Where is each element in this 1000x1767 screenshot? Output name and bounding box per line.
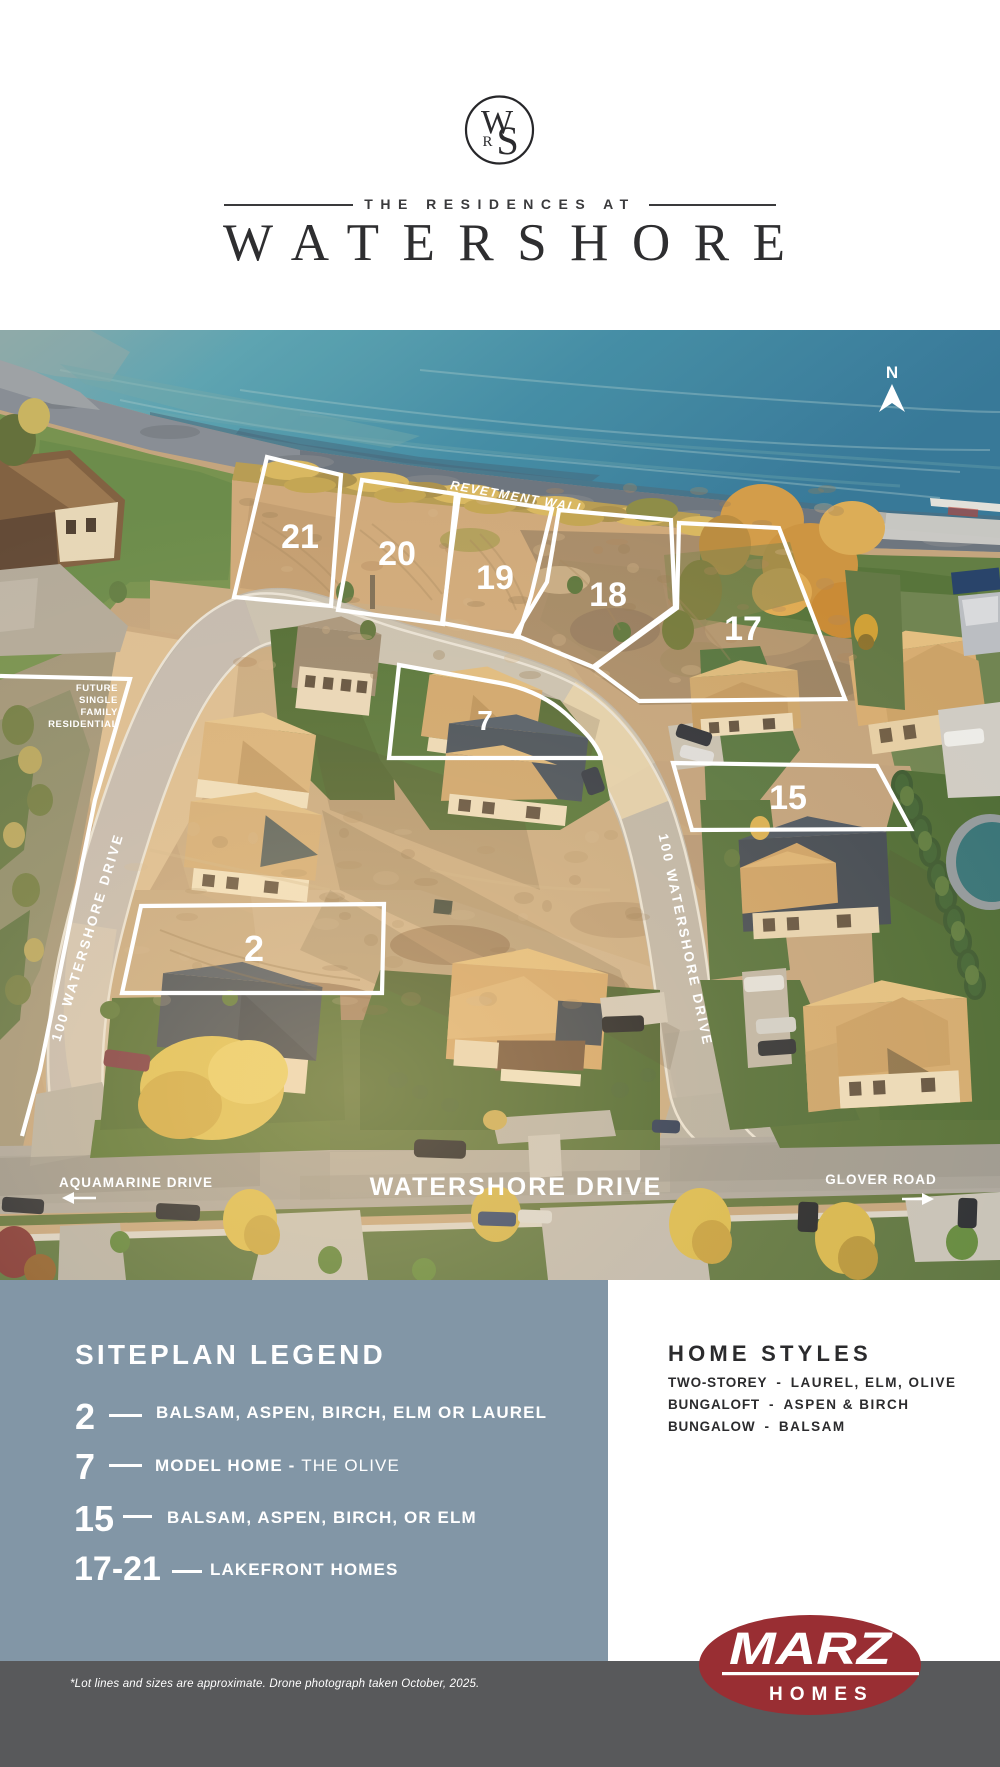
svg-text:GLOVER ROAD: GLOVER ROAD (825, 1172, 937, 1187)
svg-text:S: S (497, 118, 519, 163)
svg-text:2: 2 (244, 928, 264, 969)
svg-text:FAMILY: FAMILY (80, 707, 118, 718)
svg-text:18: 18 (589, 576, 627, 614)
svg-text:19: 19 (476, 559, 514, 597)
svg-text:R: R (483, 134, 493, 150)
svg-text:17: 17 (724, 610, 762, 648)
svg-text:7: 7 (477, 705, 493, 736)
svg-text:RESIDENTIAL: RESIDENTIAL (48, 719, 118, 730)
svg-text:21: 21 (281, 518, 319, 556)
svg-text:SINGLE: SINGLE (79, 695, 118, 706)
svg-text:AQUAMARINE DRIVE: AQUAMARINE DRIVE (59, 1175, 213, 1190)
svg-text:FUTURE: FUTURE (76, 683, 118, 694)
svg-text:15: 15 (769, 779, 807, 817)
svg-text:WATERSHORE DRIVE: WATERSHORE DRIVE (370, 1173, 663, 1201)
svg-text:MARZ: MARZ (729, 1623, 893, 1674)
svg-text:HOMES: HOMES (769, 1684, 874, 1705)
svg-text:20: 20 (378, 535, 416, 573)
svg-text:N: N (886, 363, 898, 382)
